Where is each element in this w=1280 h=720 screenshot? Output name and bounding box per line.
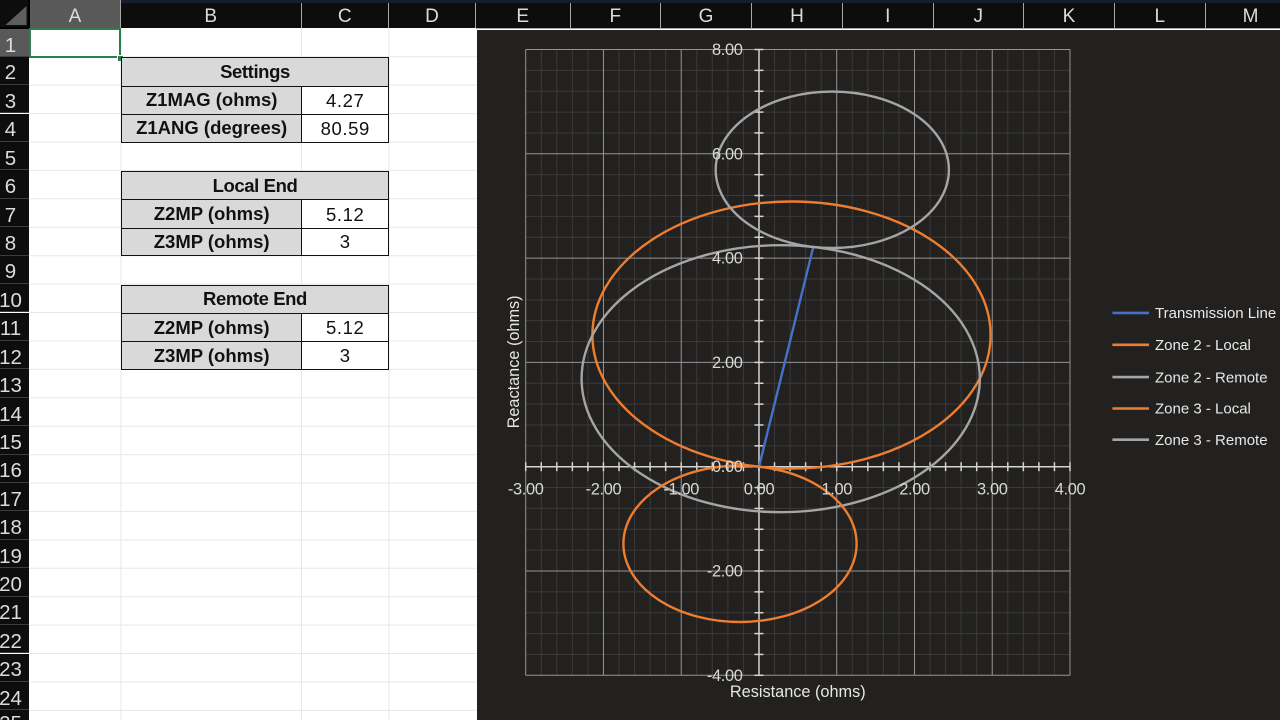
svg-text:0.00: 0.00 [712,458,743,476]
svg-text:Transmission Line: Transmission Line [1155,305,1276,322]
svg-text:Resistance (ohms): Resistance (ohms) [730,683,866,701]
svg-text:2.00: 2.00 [712,353,743,371]
svg-text:2.00: 2.00 [899,480,930,498]
svg-text:3.00: 3.00 [977,480,1008,498]
svg-text:6.00: 6.00 [712,145,743,163]
svg-text:Zone 3 - Remote: Zone 3 - Remote [1155,431,1268,448]
svg-text:4.00: 4.00 [712,249,743,267]
svg-text:1.00: 1.00 [821,480,852,498]
svg-text:Zone 2 - Remote: Zone 2 - Remote [1155,369,1268,386]
svg-text:Reactance (ohms): Reactance (ohms) [505,295,523,428]
svg-text:-2.00: -2.00 [586,480,622,498]
svg-text:-3.00: -3.00 [508,480,544,498]
svg-text:-1.00: -1.00 [663,480,699,498]
svg-text:-2.00: -2.00 [707,562,743,580]
svg-text:8.00: 8.00 [712,41,743,59]
svg-text:Zone 2 - Local: Zone 2 - Local [1155,337,1251,354]
svg-text:Zone 3 - Local: Zone 3 - Local [1155,400,1251,417]
svg-text:0.00: 0.00 [744,480,775,498]
svg-text:4.00: 4.00 [1055,480,1086,498]
